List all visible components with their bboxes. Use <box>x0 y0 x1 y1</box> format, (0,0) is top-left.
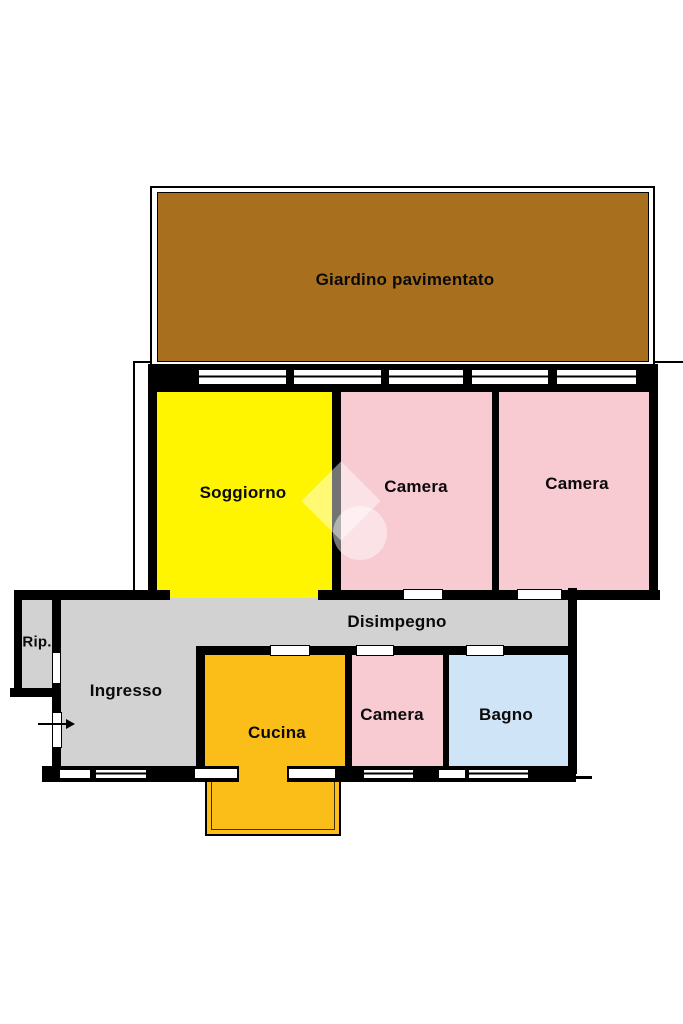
wall-hall-top-left <box>18 590 152 600</box>
boundary-line <box>133 361 135 598</box>
door-opening-cucina <box>270 645 310 656</box>
entrance-arrow-head-icon <box>66 719 75 729</box>
kitchen-balcony-passage <box>239 766 287 782</box>
wall-cucina-left <box>196 646 205 776</box>
wall-left-upper <box>148 364 157 600</box>
door-opening-rip <box>52 652 61 684</box>
wall-camere-bottom <box>332 590 660 600</box>
room-label-camera-1: Camera <box>384 477 448 497</box>
door-opening-bagno <box>466 645 504 656</box>
room-label-soggiorno: Soggiorno <box>200 483 287 503</box>
wall-soggiorno-bottom-right <box>318 590 341 600</box>
wall-camera-bagno <box>443 652 449 772</box>
room-label-cucina: Cucina <box>248 723 306 743</box>
window <box>467 768 530 780</box>
balcony-door-right <box>287 767 337 780</box>
wall-camera-camera <box>492 384 499 592</box>
room-label-camera-2: Camera <box>545 474 609 494</box>
balcony-door-left <box>193 767 239 780</box>
entrance-door-opening <box>52 712 62 748</box>
door-opening-bottom <box>58 768 92 780</box>
window <box>197 368 288 386</box>
room-cucina <box>203 652 345 772</box>
wall-rip-bottom <box>10 688 55 697</box>
window <box>387 368 465 386</box>
door-opening-camera-3 <box>356 645 394 656</box>
boundary-line <box>576 776 592 779</box>
window <box>292 368 383 386</box>
floor-plan: Giardino pavimentato Soggiorno Camera Ca… <box>0 0 683 1024</box>
wall-right-upper <box>649 364 658 600</box>
room-label-camera-3: Camera <box>360 705 424 725</box>
room-label-bagno: Bagno <box>479 705 533 725</box>
window <box>555 368 638 386</box>
door-opening-camera-1 <box>403 589 443 600</box>
boundary-line <box>655 361 683 363</box>
door-opening-bottom <box>437 768 467 780</box>
door-opening-camera-2 <box>517 589 562 600</box>
wall-rip-left <box>14 590 22 692</box>
window <box>94 768 148 780</box>
entrance-arrow <box>38 723 68 725</box>
window <box>470 368 550 386</box>
window <box>362 768 415 780</box>
room-label-disimpegno: Disimpegno <box>347 612 446 632</box>
wall-hall-right <box>568 588 577 774</box>
room-label-rip: Rip. <box>22 634 51 651</box>
room-label-ingresso: Ingresso <box>90 681 162 701</box>
watermark-logo-circle <box>333 506 387 560</box>
wall-cucina-right <box>345 646 352 776</box>
room-label-giardino: Giardino pavimentato <box>316 270 495 290</box>
